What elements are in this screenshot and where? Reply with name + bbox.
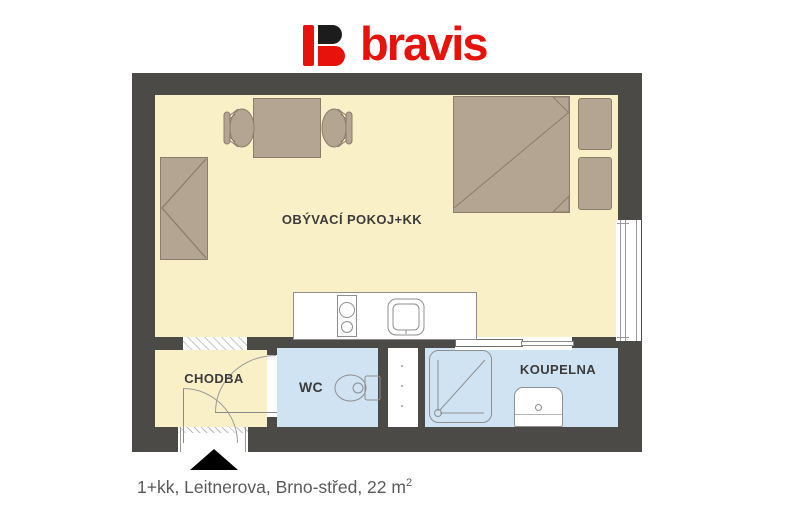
bravis-logo-b-top-icon	[318, 25, 342, 44]
sliding-door-track-icon	[521, 341, 574, 346]
room-label-bathroom: KOUPELNA	[498, 362, 618, 377]
window-tick	[617, 337, 629, 338]
cooktop-icon	[337, 295, 357, 337]
bravis-logo-text: bravis	[360, 21, 486, 66]
washbasin-icon	[514, 387, 563, 427]
door-jamb	[245, 427, 246, 452]
listing-caption: 1+kk, Leitnerova, Brno-střed, 22 m2	[137, 477, 412, 498]
bravis-logo-b-bottom-icon	[318, 46, 345, 66]
room-label-living: OBÝVACÍ POKOJ+KK	[232, 212, 472, 227]
wc-door-leaf-icon	[215, 412, 277, 413]
window-frame-line	[625, 220, 626, 341]
basin-drain-icon	[535, 404, 542, 411]
shower-icon	[428, 349, 493, 424]
chair-icon	[223, 104, 255, 152]
chair-icon	[321, 104, 353, 152]
room-label-hall: CHODBA	[154, 371, 274, 386]
pillow-icon	[578, 157, 612, 210]
double-bed-icon	[453, 96, 583, 213]
caption-superscript: 2	[406, 477, 412, 489]
door-jamb	[180, 427, 181, 452]
shaft-dot	[401, 365, 403, 367]
window-frame-line	[620, 220, 621, 341]
burner-icon	[341, 321, 353, 333]
caption-text: 1+kk, Leitnerova, Brno-střed, 22 m	[137, 477, 406, 497]
bravis-logo-bar-icon	[303, 25, 314, 66]
basin-line	[515, 414, 562, 415]
sliding-door-icon	[455, 339, 523, 347]
window-icon	[616, 220, 641, 341]
kitchen-counter-icon	[293, 292, 477, 340]
floor-plan: OBÝVACÍ POKOJ+KK CHODBA WC KOUPELNA	[132, 73, 642, 452]
hall-sliding-door-icon	[183, 337, 247, 350]
toilet-icon	[334, 373, 382, 403]
shaft-dot	[401, 405, 403, 407]
shaft-dot	[401, 385, 403, 387]
burner-icon	[339, 302, 355, 318]
pillow-icon	[578, 98, 612, 150]
entrance-arrow-icon	[190, 449, 238, 470]
room-label-wc: WC	[281, 379, 341, 395]
window-frame-line	[636, 220, 637, 341]
wardrobe-icon	[160, 157, 208, 260]
window-tick	[617, 223, 629, 224]
installation-shaft	[388, 348, 418, 427]
dining-table-icon	[253, 98, 321, 158]
listing-floor-plan-image: bravis	[0, 0, 800, 531]
kitchen-sink-icon	[387, 298, 425, 336]
